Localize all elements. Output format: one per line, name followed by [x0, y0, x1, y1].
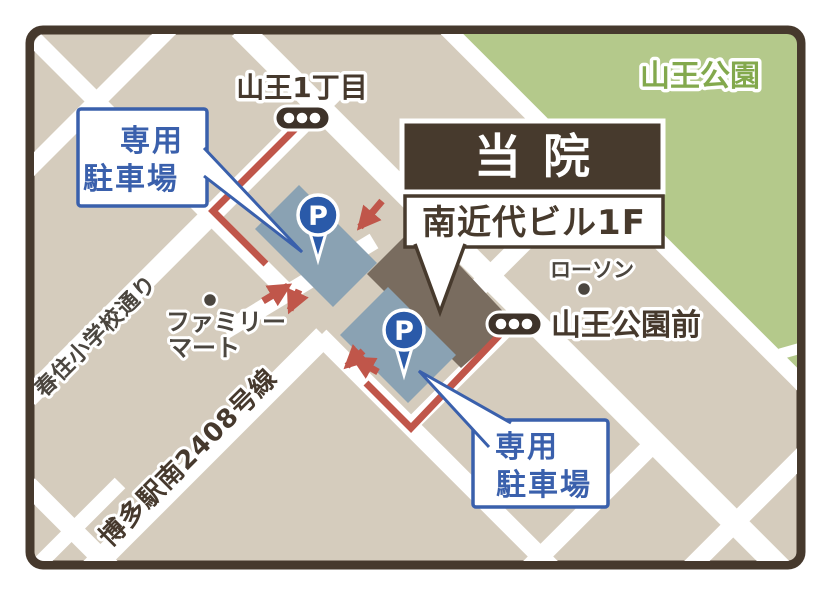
pin-letter: P — [394, 316, 414, 347]
bus-stop-icon-dot — [297, 113, 308, 124]
park-label: 山王公園 — [640, 59, 760, 94]
familymart-dot — [203, 293, 217, 307]
bus-stop-icon-dot — [310, 113, 321, 124]
lawson-label: ローソン — [550, 258, 634, 282]
bus-stop-label: 山王1丁目 — [236, 71, 367, 104]
parking-bubble-line2: 駐車場 — [83, 162, 179, 197]
clinic-building-label: 南近代ビル1F — [422, 203, 646, 243]
parking-bubble-line1: 専用 — [120, 124, 184, 159]
bus-stop-icon-dot — [522, 319, 533, 330]
bus-stop-icon-dot — [496, 319, 507, 330]
map-canvas: ファミリー マート ローソン 春住小学校通り 博多駅南2408号線 山王1丁目 … — [0, 0, 831, 595]
lawson-dot — [577, 282, 591, 296]
parking-bubble-line2: 駐車場 — [496, 468, 592, 503]
bus-stop-icon-dot — [284, 113, 295, 124]
bus-stop-icon-dot — [509, 319, 520, 330]
bus-stop-label: 山王公園前 — [551, 308, 701, 343]
access-map: ファミリー マート ローソン 春住小学校通り 博多駅南2408号線 山王1丁目 … — [0, 0, 831, 595]
familymart-label-line1: ファミリー — [166, 308, 286, 336]
clinic-name: 当院 — [474, 130, 612, 185]
familymart-label-line2: マート — [168, 334, 240, 362]
pin-letter: P — [308, 201, 328, 232]
parking-bubble-line1: 専用 — [495, 430, 559, 465]
